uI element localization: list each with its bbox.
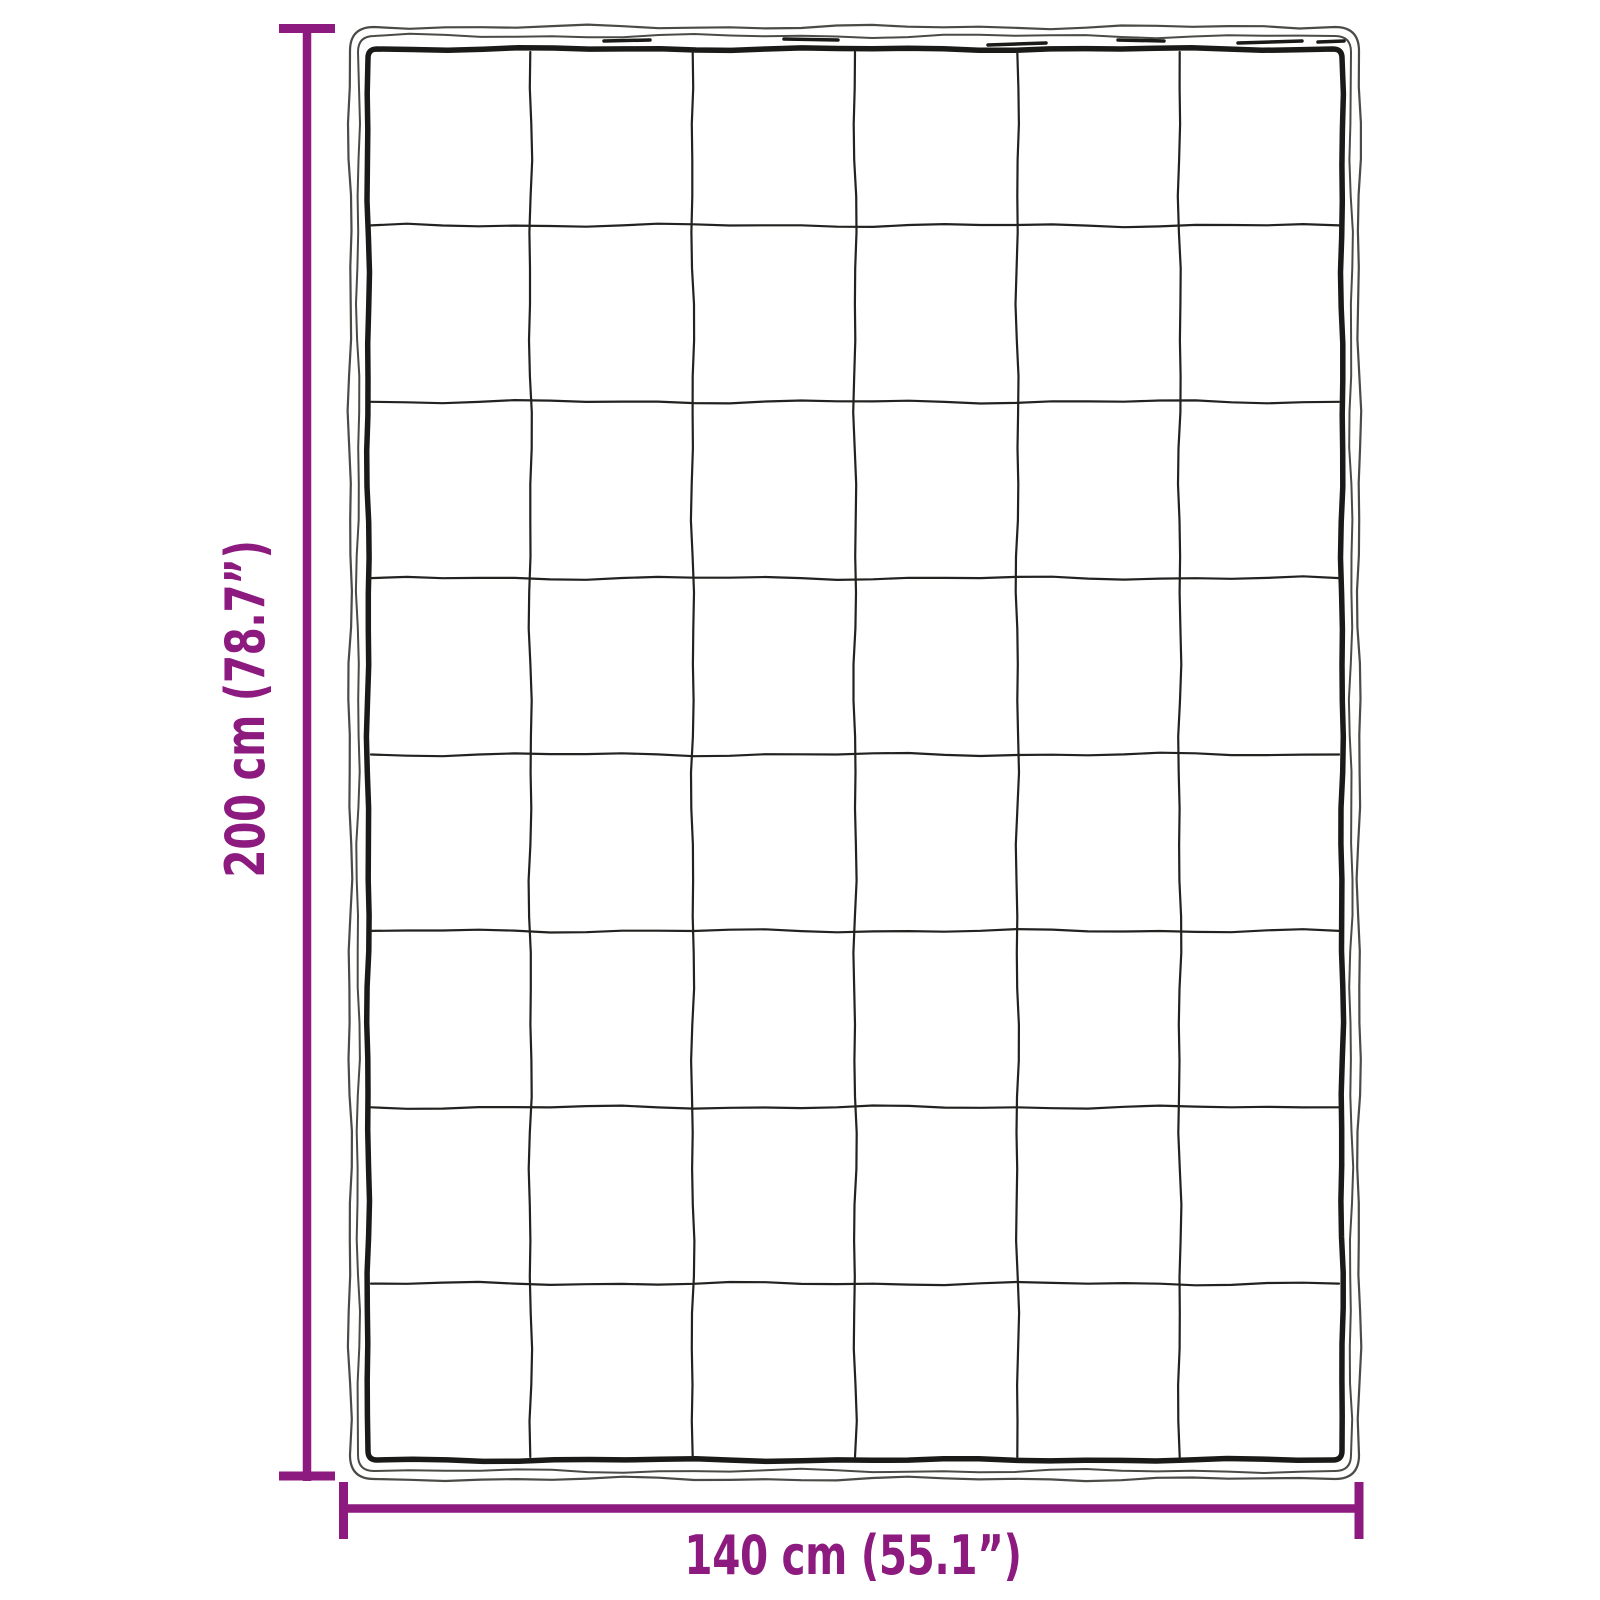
quilt-seam-horizontal — [371, 224, 1339, 228]
sketch-dash — [604, 40, 650, 41]
quilt-seam-vertical — [1178, 52, 1182, 1457]
product-dimension-diagram: 200 cm (78.7”) 140 cm (55.1”) — [0, 0, 1600, 1600]
width-label: 140 cm (55.1”) — [684, 1525, 1021, 1587]
sketch-dash — [784, 39, 838, 40]
sketch-dash — [1318, 41, 1344, 42]
sketch-dash — [1238, 41, 1302, 43]
diagram-canvas: 200 cm (78.7”) 140 cm (55.1”) — [0, 0, 1600, 1600]
sketch-dash — [988, 43, 1046, 45]
quilt-seam-horizontal — [371, 400, 1339, 403]
sketch-dash — [1118, 40, 1164, 41]
blanket-illustration — [348, 25, 1362, 1482]
height-label: 200 cm (78.7”) — [215, 540, 277, 877]
quilt-seam-vertical — [691, 52, 695, 1457]
